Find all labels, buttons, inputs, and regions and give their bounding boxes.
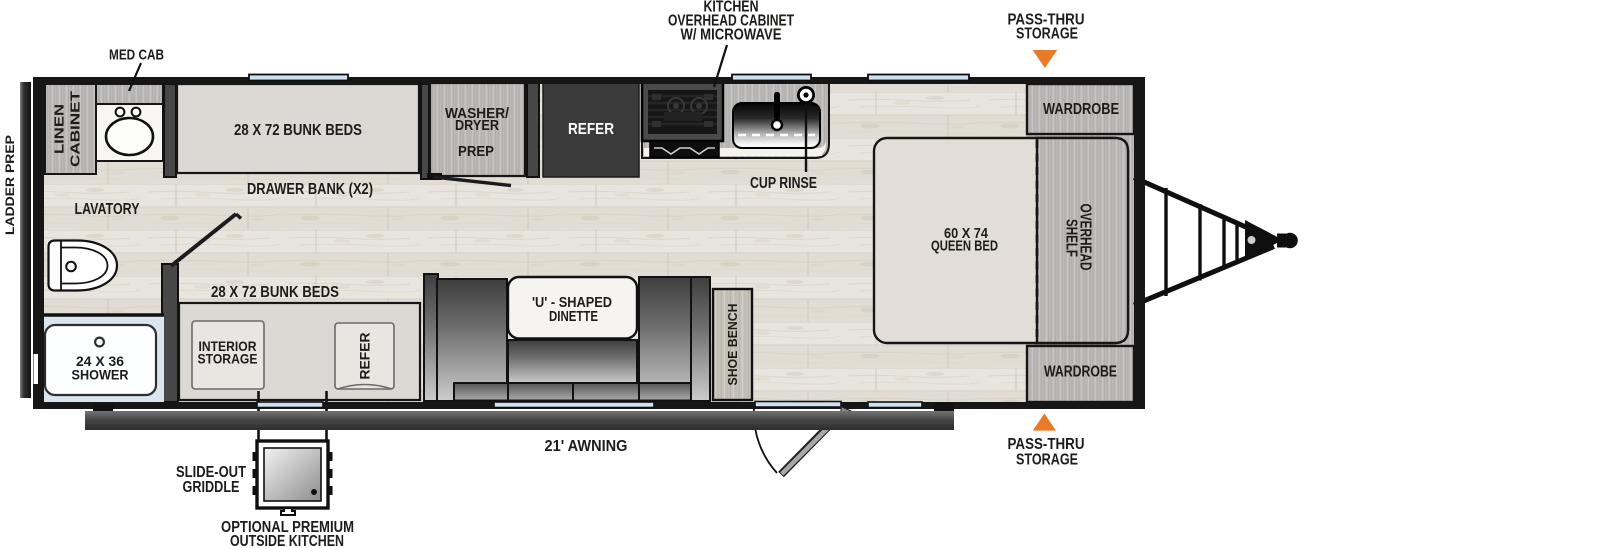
svg-text:PREP: PREP — [458, 143, 494, 160]
svg-text:STORAGE: STORAGE — [1016, 26, 1078, 43]
svg-text:28 X 72 BUNK BEDS: 28 X 72 BUNK BEDS — [234, 122, 362, 139]
svg-text:MED CAB: MED CAB — [109, 47, 164, 64]
svg-text:LINEN: LINEN — [53, 104, 67, 154]
svg-text:SHOE BENCH: SHOE BENCH — [726, 304, 740, 386]
svg-text:DRAWER BANK (X2): DRAWER BANK (X2) — [247, 181, 373, 198]
svg-text:DRYER: DRYER — [455, 117, 499, 134]
svg-text:DINETTE: DINETTE — [549, 308, 598, 325]
svg-text:LADDER PREP: LADDER PREP — [5, 135, 17, 235]
svg-text:STORAGE: STORAGE — [198, 351, 258, 367]
svg-text:QUEEN BED: QUEEN BED — [931, 238, 998, 255]
svg-text:PASS-THRU: PASS-THRU — [1008, 436, 1085, 453]
svg-text:REFER: REFER — [357, 333, 373, 380]
svg-text:WARDROBE: WARDROBE — [1044, 364, 1117, 381]
svg-text:LAVATORY: LAVATORY — [75, 201, 141, 218]
svg-text:REFER: REFER — [568, 121, 614, 138]
svg-text:W/ MICROWAVE: W/ MICROWAVE — [681, 27, 782, 44]
svg-text:SHELF: SHELF — [1063, 219, 1080, 257]
svg-text:SHOWER: SHOWER — [72, 367, 129, 383]
svg-text:STORAGE: STORAGE — [1016, 452, 1078, 469]
svg-text:28 X 72 BUNK BEDS: 28 X 72 BUNK BEDS — [211, 284, 339, 301]
svg-text:CUP RINSE: CUP RINSE — [750, 175, 817, 192]
svg-text:CABINET: CABINET — [69, 91, 83, 167]
svg-text:21' AWNING: 21' AWNING — [545, 438, 628, 455]
svg-text:OUTSIDE KITCHEN: OUTSIDE KITCHEN — [230, 533, 344, 548]
svg-text:GRIDDLE: GRIDDLE — [183, 479, 240, 496]
svg-text:WARDROBE: WARDROBE — [1043, 101, 1119, 118]
